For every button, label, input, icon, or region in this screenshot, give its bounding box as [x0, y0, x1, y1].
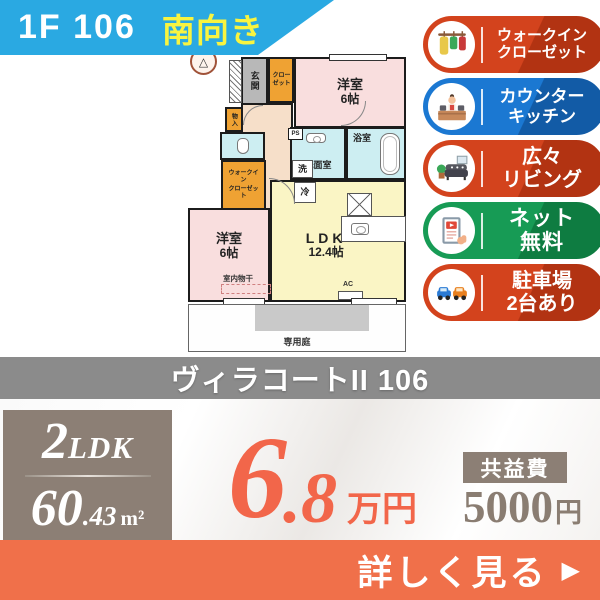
sink-icon [306, 133, 326, 143]
ps-label: PS [291, 131, 299, 138]
floor-plan: LDK 12.4帖 玄関 クロー ゼット 洋室 6帖 物入 ウォークイン クロー… [183, 48, 410, 357]
sofa-icon [435, 152, 469, 186]
page-title: ヴィラコートII 106 [171, 357, 430, 399]
spec-divider [25, 475, 151, 477]
rent-price: 6 .8 万円 [228, 411, 417, 531]
area-value: 60 [31, 483, 83, 535]
room-storage: 物入 [225, 107, 243, 132]
feature-badges: ウォークイン クローゼット カウンター キッチン [423, 16, 600, 326]
badge-divider [481, 89, 483, 125]
title-bar: ヴィラコートII 106 [0, 357, 600, 399]
window-icon [329, 54, 387, 61]
tablet-icon [435, 214, 469, 248]
room-walk-in-closet: ウォークイン クローゼット [221, 160, 266, 210]
kitchen-sink-icon [351, 223, 369, 235]
badge-divider [481, 27, 483, 63]
details-button[interactable]: 詳しく見る ▶ [0, 540, 600, 600]
ldk-size-label: 12.4帖 [272, 246, 380, 260]
fee-label: 共益費 [481, 453, 550, 483]
badge-label: ウォークイン [489, 28, 595, 45]
room-closet: クロー ゼット [268, 57, 294, 103]
badge-counter-kitchen: カウンター キッチン [423, 78, 600, 135]
indoor-drying-box [221, 284, 271, 294]
price-unit: 万円 [347, 494, 417, 532]
entrance-door-icon [229, 60, 242, 103]
listing-card: LDK 12.4帖 玄関 クロー ゼット 洋室 6帖 物入 ウォークイン クロー… [0, 0, 600, 600]
pipe-space: PS [288, 128, 303, 140]
washer-space: 洗 [292, 160, 313, 178]
room-toilet [220, 132, 265, 160]
badge-label: カウンター [489, 87, 595, 106]
fee-value: 5000 円 [463, 485, 591, 530]
bathroom-label: 浴室 [353, 133, 371, 143]
badge-divider [481, 275, 483, 311]
toilet-icon [237, 138, 249, 154]
wic-label: ウォークイン [226, 170, 261, 184]
entrance-label: 玄関 [249, 71, 259, 91]
facing-direction: 南向き [162, 4, 264, 52]
unit-number: 1F 106 [18, 8, 136, 47]
arrow-right-icon: ▶ [562, 556, 580, 585]
unit-ribbon: 1F 106 南向き [0, 0, 334, 55]
garden-label: 専用庭 [189, 335, 405, 348]
kitchen-counter [341, 216, 406, 242]
indoor-drying-label: 室内物干 [223, 273, 253, 284]
room-entrance: 玄関 [241, 57, 268, 105]
fee-amount: 5000 [463, 485, 553, 530]
badge-divider [481, 151, 483, 187]
bedroom-top-label: 洋室 [337, 78, 363, 93]
fridge-label: 冷 [300, 187, 309, 197]
closet-icon [435, 28, 469, 62]
spec-box: 2 LDK 60 .43 m² [3, 410, 172, 540]
fridge-space: 冷 [294, 182, 316, 203]
washer-label: 洗 [298, 164, 307, 174]
garden-terrace [255, 305, 369, 331]
summary-section: 2 LDK 60 .43 m² 6 .8 万円 共益費 5000 円 [0, 399, 600, 540]
badge-label: 駐車場 [489, 270, 595, 292]
area-unit: m² [120, 508, 144, 529]
price-amount: 6 [228, 425, 283, 531]
layout-number: 2 [42, 416, 68, 468]
layout-type: LDK [68, 432, 133, 463]
badge-parking: 駐車場 2台あり [423, 264, 600, 321]
private-garden: 専用庭 [188, 304, 406, 352]
fee-label-box: 共益費 [463, 452, 567, 483]
badge-free-internet: ネット 無料 [423, 202, 600, 259]
table-icon [347, 193, 372, 216]
fee-unit: 円 [555, 500, 582, 527]
bathtub-icon [380, 133, 400, 175]
badge-divider [481, 213, 483, 249]
room-bathroom: 浴室 [346, 127, 406, 180]
badge-walk-in-closet: ウォークイン クローゼット [423, 16, 600, 73]
badge-label: 広々 [489, 146, 595, 168]
kitchen-icon [435, 90, 469, 124]
storage-label: 物入 [231, 113, 238, 127]
badge-spacious-living: 広々 リビング [423, 140, 600, 197]
cars-icon [435, 276, 469, 310]
ac-label: AC [343, 281, 353, 288]
badge-label: ネット [489, 207, 595, 231]
details-button-label: 詳しく見る [358, 545, 548, 596]
closet-label: クロー [272, 73, 290, 80]
